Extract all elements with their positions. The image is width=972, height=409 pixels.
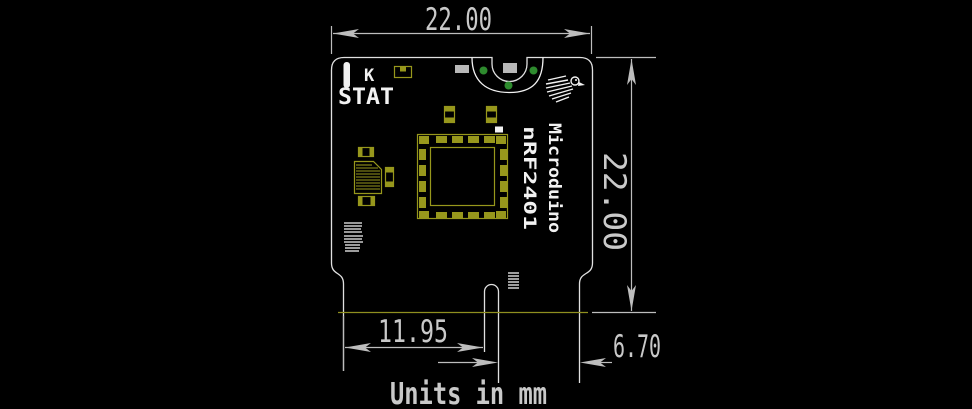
- board-title-silk: Microduino nRF2401: [519, 123, 564, 233]
- qfn-pad: [468, 136, 479, 143]
- width-dimension-value: 22.00: [425, 2, 492, 38]
- qfn-pad: [500, 197, 507, 208]
- bottom-slot: [485, 285, 499, 383]
- passive-end: [371, 197, 375, 206]
- qfn-body-outline: [431, 148, 495, 206]
- qfn-pad: [436, 136, 447, 143]
- qfn-pad: [500, 165, 507, 176]
- qfn-footprint: [418, 107, 508, 220]
- qfn-pad: [436, 212, 447, 219]
- passive-end: [370, 148, 374, 157]
- crystal-footprint: [355, 148, 394, 206]
- passive-end: [445, 107, 455, 112]
- stat-label: STAT: [338, 85, 394, 110]
- qfn-pad: [496, 136, 506, 144]
- qfn-pad: [500, 181, 507, 192]
- crystal-hatch: [356, 165, 380, 189]
- passive-end: [386, 168, 394, 173]
- pin1-mark: [495, 127, 503, 133]
- qfn-pad: [500, 149, 507, 160]
- qfn-pad: [419, 149, 426, 160]
- plated-hole-left: [480, 67, 488, 75]
- passive-end: [487, 107, 497, 112]
- qfn-pad: [496, 211, 506, 219]
- top-notch: [472, 58, 543, 93]
- qfn-pad: [452, 212, 463, 219]
- bird-logo: [546, 76, 585, 102]
- vertical-text-line1: Microduino: [544, 123, 564, 233]
- silk-marking-near-slot: [508, 273, 519, 288]
- units-note: Units in mm: [390, 377, 547, 409]
- pcb-dimension-drawing: K STAT: [0, 0, 972, 409]
- led-component-mark: [400, 67, 406, 72]
- top-component: [455, 65, 469, 73]
- notch-component: [503, 63, 517, 73]
- qfn-pad: [419, 211, 429, 219]
- qfn-pad: [468, 212, 479, 219]
- slot-offset-value: 11.95: [378, 314, 448, 350]
- logo-head: [571, 77, 579, 85]
- passive-end: [445, 118, 455, 123]
- qfn-pad: [452, 136, 463, 143]
- plated-hole-right: [530, 67, 538, 75]
- qfn-pad: [484, 212, 495, 219]
- qfn-pad: [484, 136, 495, 143]
- vertical-height-dimension: 22.00: [592, 58, 656, 313]
- vertical-text-line2: nRF2401: [519, 126, 539, 230]
- height-dimension-value: 22.00: [596, 152, 632, 251]
- drawing-svg: K STAT: [0, 0, 972, 409]
- passive-end: [386, 182, 394, 187]
- qfn-pad: [419, 136, 429, 144]
- edge-distance-value: 6.70: [613, 329, 661, 365]
- passive-end: [487, 118, 497, 123]
- logo-beak: [578, 82, 585, 86]
- silk-marking-bottom-left: [344, 223, 363, 251]
- logo-eye: [575, 79, 577, 81]
- logo-wing-line: [548, 76, 566, 80]
- passive-end: [359, 197, 363, 206]
- led-label: K: [364, 66, 375, 86]
- qfn-pad: [419, 165, 426, 176]
- horizontal-width-dimension: 22.00: [332, 2, 592, 54]
- plated-hole-bottom: [505, 82, 513, 90]
- qfn-pad: [419, 181, 426, 192]
- status-led-area: K STAT: [338, 62, 469, 110]
- qfn-pad: [419, 197, 426, 208]
- passive-end: [359, 148, 363, 157]
